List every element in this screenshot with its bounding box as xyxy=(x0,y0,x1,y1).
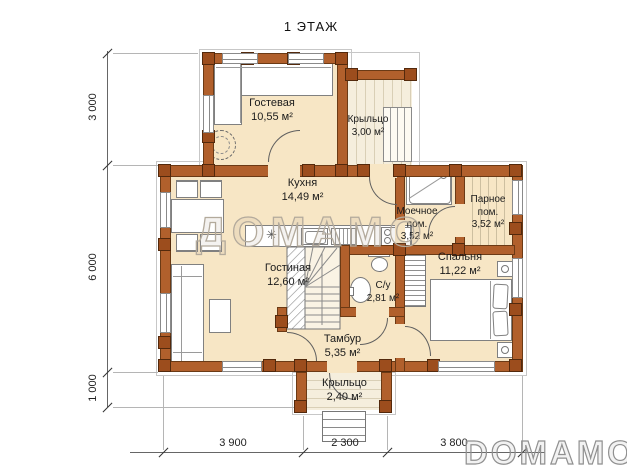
timber-post xyxy=(449,164,462,177)
door-gap-bathroom xyxy=(356,306,389,318)
room-name: Крыльцо xyxy=(333,114,403,127)
room-label-guest: Гостевая 10,55 м² xyxy=(212,97,332,125)
window xyxy=(288,53,324,64)
timber-post xyxy=(335,52,348,65)
timber-post xyxy=(345,68,358,81)
extension-line xyxy=(113,53,198,54)
watermark-logo: DOMAMO xyxy=(464,434,627,470)
nightstand-lamp xyxy=(501,346,509,354)
dining-chair xyxy=(176,234,198,252)
room-name: С/у xyxy=(357,280,409,293)
room-name: Кухня xyxy=(260,177,345,191)
room-area: 5,35 м² xyxy=(300,347,385,361)
room-area: 2,81 м² xyxy=(357,293,409,306)
living-sofa-armrest xyxy=(173,276,202,277)
timber-post xyxy=(158,359,171,372)
room-label-kitchen: Кухня 14,49 м² xyxy=(260,177,345,205)
dim-label-2300: 2 300 xyxy=(315,437,375,449)
extension-line xyxy=(113,372,158,373)
window xyxy=(512,258,523,298)
room-label-living: Гостиная 12,60 м² xyxy=(238,262,338,290)
room-name: Спальня xyxy=(415,251,505,265)
timber-post xyxy=(404,68,417,81)
room-label-bathroom: С/у 2,81 м² xyxy=(357,280,409,305)
timber-post xyxy=(202,52,215,65)
window xyxy=(160,293,171,333)
timber-post xyxy=(263,359,276,372)
pillow xyxy=(492,284,508,310)
living-sofa-back xyxy=(181,266,182,363)
timber-post xyxy=(202,164,215,177)
floor-plan: 1 ЭТАЖ ✳ xyxy=(0,0,627,470)
room-label-bedroom: Спальня 11,22 м² xyxy=(415,251,505,279)
room-area: 11,22 м² xyxy=(415,265,505,279)
timber-post xyxy=(357,164,370,177)
timber-post xyxy=(335,164,348,177)
door-gap-porch-exit xyxy=(327,360,357,373)
room-name: Гостевая xyxy=(212,97,332,111)
timber-post xyxy=(379,359,392,372)
door-gap-guest xyxy=(268,164,300,178)
timber-post xyxy=(302,164,315,177)
bed-headboard-line xyxy=(490,281,491,339)
dining-chair xyxy=(176,180,198,198)
window xyxy=(160,192,171,228)
room-area: 10,55 м² xyxy=(212,111,332,125)
room-area: 3,52 м² xyxy=(460,219,516,232)
pillow xyxy=(492,311,508,337)
extension-line xyxy=(303,416,304,450)
window xyxy=(222,53,258,64)
dim-label-3000: 3 000 xyxy=(87,77,99,137)
room-label-vestibule: Тамбур 5,35 м² xyxy=(300,333,385,361)
timber-post xyxy=(275,315,288,328)
timber-post xyxy=(158,336,171,349)
room-name: Тамбур xyxy=(300,333,385,347)
room-area: 3,00 м² xyxy=(333,127,403,140)
room-name: Гостиная xyxy=(238,262,338,276)
watermark-center: ДОМАМО xyxy=(196,208,428,256)
timber-post xyxy=(509,359,522,372)
extension-line xyxy=(163,376,164,450)
room-name: Крыльцо xyxy=(302,377,387,391)
room-area: 14,49 м² xyxy=(260,191,345,205)
dim-label-3900: 3 900 xyxy=(203,437,263,449)
room-label-bottom-porch: Крыльцо 2,40 м² xyxy=(302,377,387,405)
dim-line-left xyxy=(107,51,108,407)
extension-line xyxy=(113,407,294,408)
coffee-table xyxy=(209,299,231,333)
room-name: Парное пом. xyxy=(460,194,516,219)
door-gap-bedroom xyxy=(395,324,405,358)
toilet-bowl xyxy=(371,257,388,272)
page-title: 1 ЭТАЖ xyxy=(231,19,391,34)
room-area: 2,40 м² xyxy=(302,391,387,405)
timber-post xyxy=(509,303,522,316)
living-sofa xyxy=(171,264,204,365)
timber-post xyxy=(509,164,522,177)
extension-line xyxy=(387,416,388,450)
dining-chair xyxy=(200,180,222,198)
room-area: 12,60 м² xyxy=(238,276,338,290)
room-label-top-porch: Крыльцо 3,00 м² xyxy=(333,114,403,139)
timber-post xyxy=(393,164,406,177)
dim-label-6000: 6 000 xyxy=(87,237,99,297)
timber-post xyxy=(158,164,171,177)
window xyxy=(438,361,495,372)
room-label-steam: Парное пом. 3,52 м² xyxy=(460,194,516,232)
extension-line xyxy=(113,165,158,166)
window xyxy=(222,361,262,372)
living-sofa-armrest xyxy=(173,352,202,353)
dim-label-1000: 1 000 xyxy=(87,358,99,418)
timber-post xyxy=(158,238,171,251)
sofa-back-line xyxy=(216,67,331,68)
